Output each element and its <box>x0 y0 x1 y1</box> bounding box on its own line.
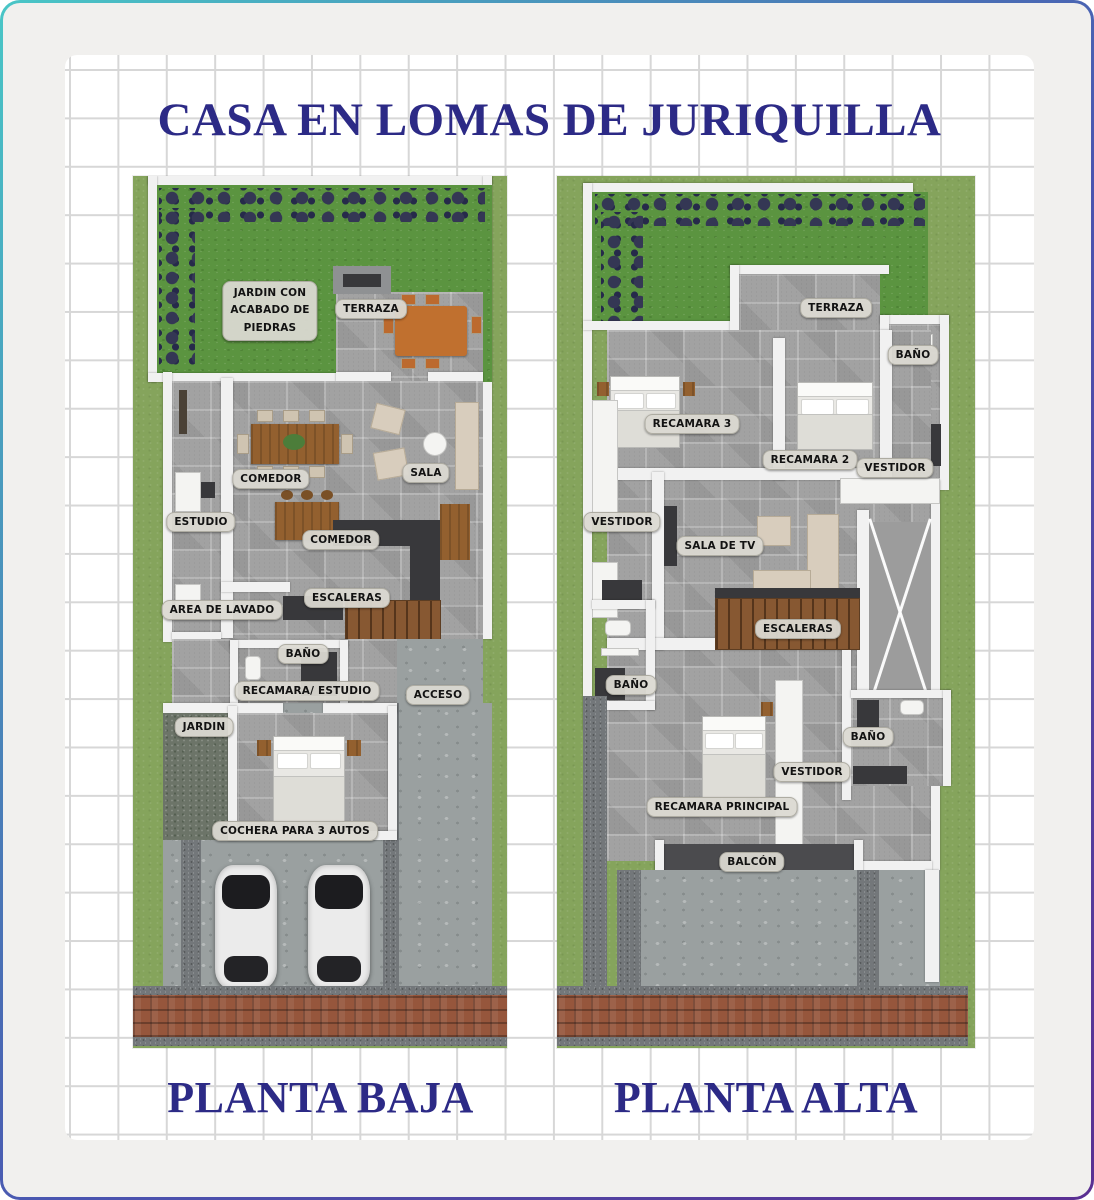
bed-headboard <box>611 377 679 391</box>
bar-stool <box>321 490 333 500</box>
dining-chair <box>237 434 249 454</box>
room-label-jardin-piedras: JARDIN CON ACABADO DE PIEDRAS <box>222 281 317 341</box>
dining-chair <box>283 410 299 422</box>
bed-blanket <box>274 776 344 821</box>
wall-pillar <box>925 870 939 982</box>
room-label-bano-principal: BAÑO <box>843 727 894 747</box>
pillow <box>614 393 645 409</box>
wall <box>388 706 397 840</box>
floorplan-planta-alta: TERRAZA BAÑO RECAMARA 3 RECAMARA 2 VESTI… <box>557 176 975 1048</box>
room-label-jardin: JARDIN <box>175 717 234 737</box>
room-label-vestidor-recamara2: VESTIDOR <box>856 458 933 478</box>
pillow <box>646 393 677 409</box>
wall <box>583 321 735 330</box>
bed-headboard <box>798 383 872 397</box>
bush-row <box>159 188 485 222</box>
caption-planta-alta: PLANTA ALTA <box>557 1072 975 1123</box>
bed <box>797 382 873 450</box>
brick-sidewalk <box>557 995 968 1037</box>
pillow <box>801 399 834 415</box>
curb <box>133 986 507 995</box>
nightstand <box>347 740 361 756</box>
driveway <box>617 870 940 992</box>
dining-chair <box>341 434 353 454</box>
curb <box>557 986 968 995</box>
sofa <box>455 402 479 490</box>
bed-blanket <box>703 754 765 797</box>
terrace-chair <box>471 316 482 334</box>
wall <box>323 703 397 713</box>
curb <box>557 1037 968 1046</box>
room-label-recamara-3: RECAMARA 3 <box>645 414 740 434</box>
brick-sidewalk <box>133 995 507 1037</box>
dining-chair <box>309 466 325 478</box>
bush-column <box>601 212 643 332</box>
wall <box>221 582 290 592</box>
room-label-sala: SALA <box>402 463 449 483</box>
floorplan-planta-baja: JARDIN CON ACABADO DE PIEDRAS TERRAZA CO… <box>133 176 507 1048</box>
gravel-strip <box>617 870 641 992</box>
terrace-chair <box>425 294 440 305</box>
shower <box>857 700 879 728</box>
room-label-balcon: BALCÓN <box>719 852 784 872</box>
wall <box>148 176 492 185</box>
bbq-grill-top <box>343 274 381 287</box>
stair-edge <box>715 588 860 598</box>
bed <box>702 716 766 798</box>
double-height-void <box>869 522 931 702</box>
room-label-recamara-estudio: RECAMARA/ ESTUDIO <box>235 681 380 701</box>
wall <box>221 378 233 638</box>
wall <box>583 183 913 192</box>
coffee-table <box>423 432 447 456</box>
bath-vanity <box>853 766 907 784</box>
dining-chair <box>309 410 325 422</box>
terrace-chair <box>425 358 440 369</box>
car <box>308 865 370 989</box>
kitchen-cabinet <box>440 504 470 560</box>
pillow <box>836 399 869 415</box>
wall <box>880 315 949 324</box>
nightstand <box>597 382 609 396</box>
room-label-recamara-2: RECAMARA 2 <box>763 450 858 470</box>
nightstand <box>257 740 271 756</box>
room-label-vestidor-principal: VESTIDOR <box>773 762 850 782</box>
caption-planta-baja: PLANTA BAJA <box>133 1072 508 1123</box>
room-label-comedor-2: COMEDOR <box>302 530 379 550</box>
bed-blanket <box>798 414 872 449</box>
toilet <box>245 656 261 680</box>
toilet <box>900 700 924 715</box>
desk <box>175 472 201 512</box>
wall <box>583 183 592 730</box>
coat-rack <box>179 390 187 434</box>
closet <box>592 400 618 518</box>
wall <box>940 315 949 490</box>
room-label-comedor: COMEDOR <box>232 469 309 489</box>
pillow <box>705 733 733 749</box>
wall <box>148 176 157 382</box>
bed <box>273 736 345 822</box>
wall <box>931 480 940 870</box>
bar-stool <box>281 490 293 500</box>
room-label-bano-terraza: BAÑO <box>888 345 939 365</box>
page-title: CASA EN LOMAS DE JURIQUILLA <box>65 93 1034 147</box>
bed-headboard <box>274 737 344 751</box>
kitchen-counter <box>410 520 440 610</box>
room-label-bano: BAÑO <box>278 644 329 664</box>
gravel-strip <box>857 870 879 992</box>
room-label-area-lavado: AREA DE LAVADO <box>162 600 283 620</box>
laundry-appliance <box>602 580 642 602</box>
wall <box>730 265 889 274</box>
pillow <box>310 753 341 769</box>
terrace-chair <box>401 358 416 369</box>
pillow <box>735 733 763 749</box>
table-plant <box>283 434 305 450</box>
tv-unit <box>664 506 677 566</box>
room-label-sala-tv: SALA DE TV <box>677 536 764 556</box>
room-label-terraza: TERRAZA <box>800 298 872 318</box>
poster-frame: CASA EN LOMAS DE JURIQUILLA <box>0 0 1094 1200</box>
room-label-cochera: COCHERA PARA 3 AUTOS <box>212 821 378 841</box>
bush-row <box>595 194 925 226</box>
room-label-recamara-principal: RECAMARA PRINCIPAL <box>647 797 798 817</box>
room-label-escaleras: ESCALERAS <box>755 619 841 639</box>
nightstand <box>683 382 695 396</box>
bar-stool <box>301 490 313 500</box>
room-label-estudio: ESTUDIO <box>166 512 235 532</box>
bush-column <box>159 208 195 368</box>
pillow <box>277 753 308 769</box>
wall <box>851 690 951 698</box>
room-label-terraza: TERRAZA <box>335 299 407 319</box>
curb <box>133 1037 507 1046</box>
bed-headboard <box>703 717 765 731</box>
room-label-bano-pasillo: BAÑO <box>606 675 657 695</box>
bed <box>610 376 680 448</box>
nightstand <box>761 702 773 716</box>
wall <box>163 703 283 713</box>
car <box>215 865 277 989</box>
closet <box>840 478 940 504</box>
toilet <box>605 620 631 636</box>
dining-chair <box>257 410 273 422</box>
desk-chair <box>201 482 215 498</box>
room-label-escaleras: ESCALERAS <box>304 588 390 608</box>
room-label-vestidor-pasillo: VESTIDOR <box>583 512 660 532</box>
gravel-strip <box>583 696 607 992</box>
bath-shelf <box>601 648 639 656</box>
wall <box>943 690 951 786</box>
room-label-acceso: ACCESO <box>406 685 470 705</box>
